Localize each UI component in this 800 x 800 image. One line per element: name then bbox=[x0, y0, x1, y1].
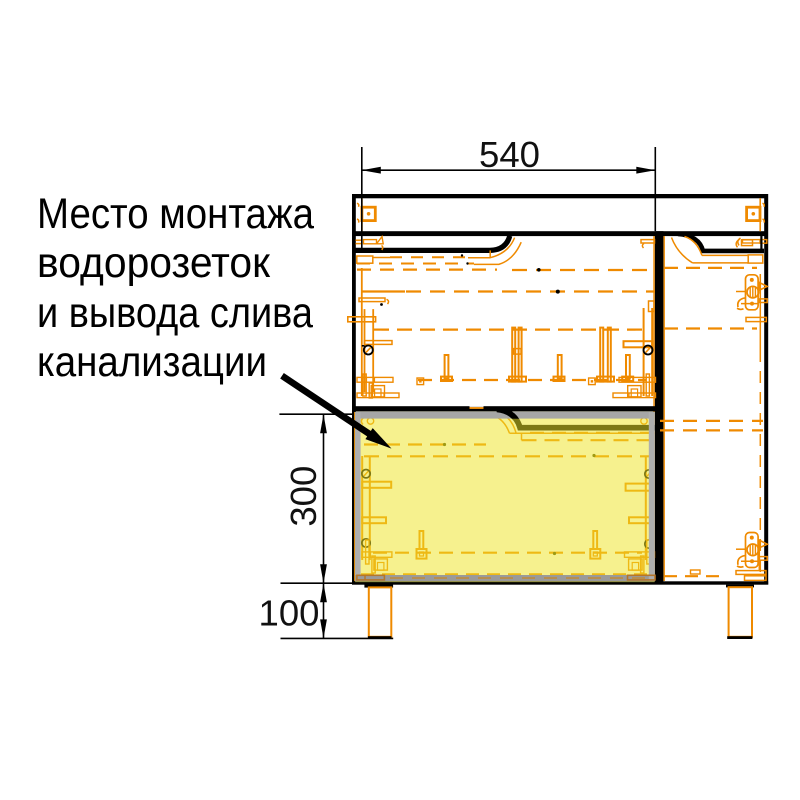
svg-text:540: 540 bbox=[479, 134, 540, 175]
svg-text:300: 300 bbox=[283, 466, 324, 527]
svg-text:100: 100 bbox=[259, 592, 320, 633]
svg-text:и вывода слива: и вывода слива bbox=[37, 289, 313, 337]
svg-text:водорозеток: водорозеток bbox=[37, 239, 271, 287]
svg-text:Место монтажа: Место монтажа bbox=[37, 190, 314, 238]
svg-text:канализации: канализации bbox=[37, 338, 267, 386]
